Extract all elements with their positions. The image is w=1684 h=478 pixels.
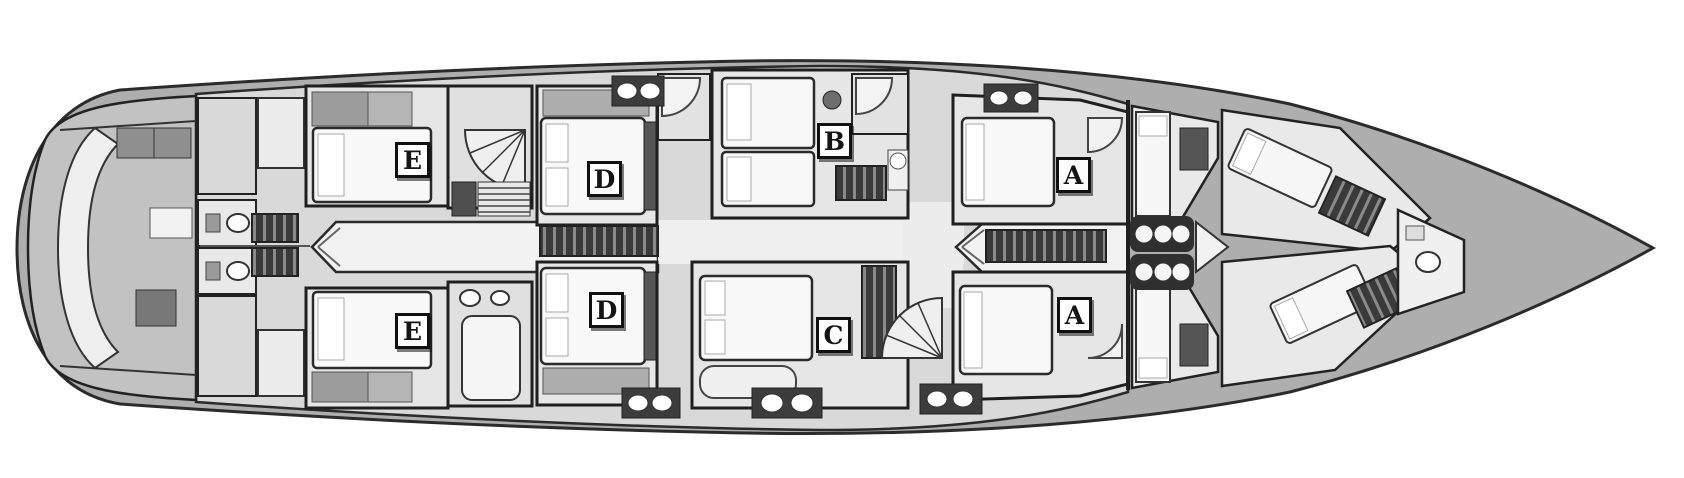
cabin-label-b: B [817,123,852,159]
cabin-label-d-starboard: D [589,292,624,328]
cabin-label-a-starboard: A [1057,297,1092,333]
cabin-d-port [537,86,657,225]
toilet-icon [227,262,249,280]
toilet-icon [1416,252,1440,272]
sink-icon [491,291,509,305]
bathtub-icon [462,316,520,400]
pillow-icon [966,124,984,200]
cabin-label-e-port: E [395,142,430,178]
pillow-icon [705,320,725,354]
cockpit-seat [150,208,192,238]
pillow-icon [546,318,568,356]
cabin-a-port [953,84,1128,224]
pillow-icon [546,124,568,162]
cabin-label-c: C [816,317,851,353]
aft-cockpit [28,96,196,400]
deck-plan-drawing [0,0,1684,478]
toilet-icon [460,290,480,306]
pillow-icon [318,298,344,360]
pillow-icon [546,274,568,312]
wardrobe-icon [252,248,298,276]
pillow-icon [1139,116,1167,136]
cabin-label-d-port: D [587,161,622,197]
wardrobe-icon [836,166,886,200]
pillow-icon [727,157,751,201]
pillow-icon [546,168,568,206]
cabin-c [692,262,908,418]
straight-stairs-icon [478,182,530,216]
sink-icon [1406,226,1424,240]
deck-plan-canvas: E E D D B C A A [0,0,1684,478]
cabin-d-starboard [537,262,657,405]
cabin-label-a-port: A [1056,157,1091,193]
wardrobe-icon [540,226,658,256]
pillow-icon [705,281,725,315]
pillow-icon [318,134,344,196]
cabin-b [712,70,908,218]
cabin-label-e-starboard: E [395,313,430,349]
cockpit-table [136,290,176,326]
pillow-icon [964,292,982,368]
pillow-icon [727,84,751,140]
wardrobe-icon [252,214,298,242]
pillow-icon [1139,358,1167,378]
wardrobe-icon [986,230,1106,262]
toilet-icon [227,214,249,232]
